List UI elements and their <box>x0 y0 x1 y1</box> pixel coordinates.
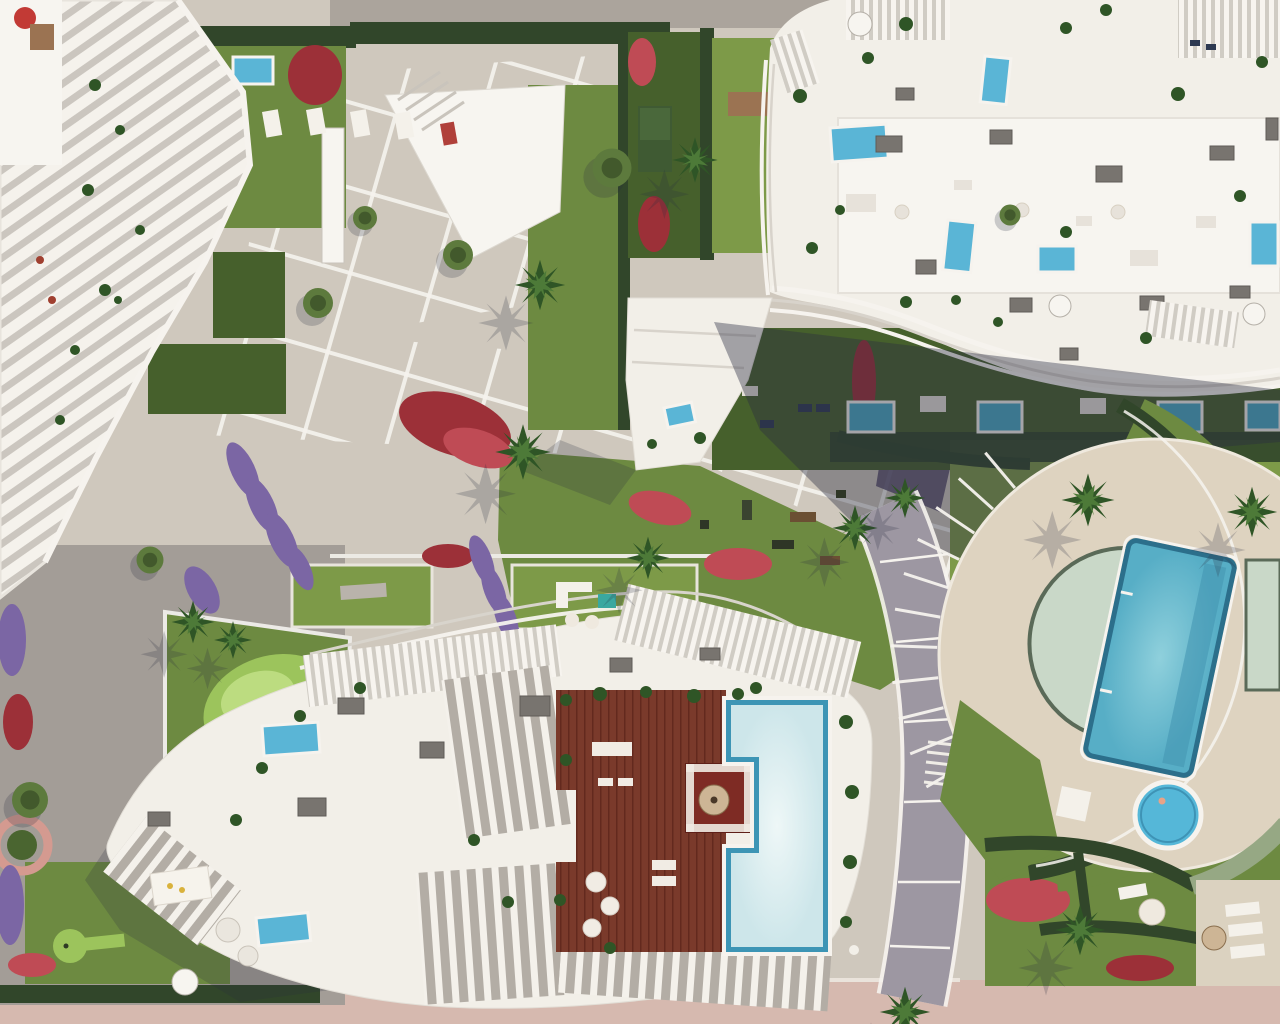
spiral-stair <box>172 969 198 995</box>
deck-seating-court <box>686 764 752 832</box>
east-pool <box>1246 560 1280 690</box>
terrace-pool <box>256 913 311 946</box>
courtyard-lawn-1 <box>213 252 285 338</box>
garden-pool <box>233 57 273 84</box>
kids-pool <box>1135 782 1201 848</box>
pergola <box>1178 0 1280 58</box>
terrace-pool <box>262 722 320 756</box>
daybed <box>238 946 258 966</box>
sun-canopy <box>1056 786 1092 822</box>
plunge-pool <box>980 56 1011 104</box>
plunge-pool <box>1038 246 1076 272</box>
hedge-column-2 <box>700 28 714 260</box>
aerial-render-canvas <box>0 0 1280 1024</box>
pergola-columns <box>416 863 565 1004</box>
pergola-columns <box>441 665 572 839</box>
aerial-render <box>0 0 1280 1024</box>
daybed <box>216 918 240 942</box>
swimmer <box>1159 798 1166 805</box>
courtyard-lawn-2 <box>148 344 286 414</box>
wing-plunge-pool <box>664 402 696 427</box>
water-feature <box>322 128 344 263</box>
terrace-table <box>30 24 54 50</box>
plunge-pool <box>943 220 976 273</box>
plunge-pool <box>1250 222 1278 266</box>
putting-green-small <box>53 929 87 963</box>
